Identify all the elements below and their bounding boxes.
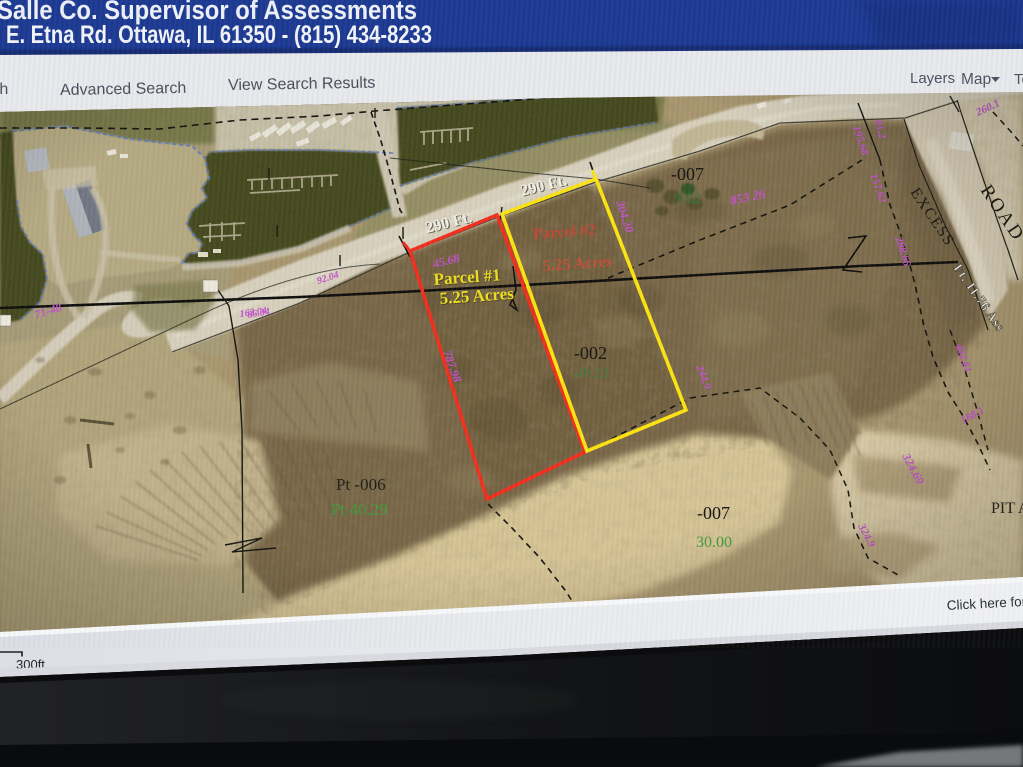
svg-text:Map: Map [961,71,991,88]
svg-text:Advanced Search: Advanced Search [60,80,187,99]
svg-text:To: To [1014,71,1023,88]
svg-text:E. Etna Rd. Ottawa, IL 61350 -: E. Etna Rd. Ottawa, IL 61350 - (815) 434… [6,21,432,49]
svg-text:View Search Results: View Search Results [228,75,376,95]
svg-text:rch: rch [0,81,8,98]
svg-text:Layers: Layers [910,70,955,87]
